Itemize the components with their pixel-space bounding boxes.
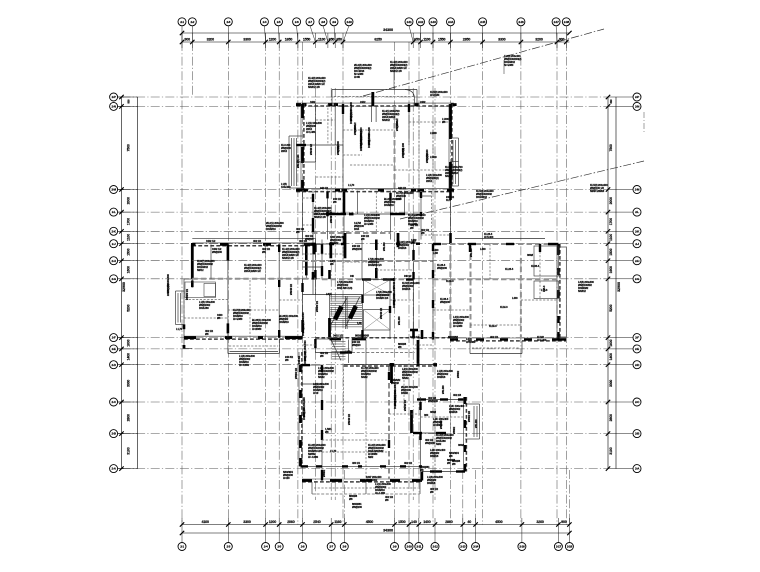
svg-text:L400: L400: [469, 248, 473, 254]
svg-text:Ø8@200: Ø8@200: [437, 266, 447, 270]
svg-text:2-11: 2-11: [407, 20, 412, 24]
svg-text:4100: 4100: [201, 520, 209, 524]
svg-text:N4Ø12: N4Ø12: [578, 289, 586, 293]
svg-text:940 1/2: 940 1/2: [289, 283, 293, 292]
svg-text:402 1/2: 402 1/2: [404, 461, 413, 465]
svg-text:32900: 32900: [617, 282, 621, 292]
svg-text:3300: 3300: [127, 380, 131, 387]
svg-text:2-11: 2-11: [416, 545, 421, 549]
svg-text:3402 1/2: 3402 1/2: [206, 239, 216, 243]
svg-text:DN4Ø4 1/3: DN4Ø4 1/3: [376, 296, 389, 300]
svg-text:Ø8@200: Ø8@200: [352, 247, 362, 251]
svg-text:2-3: 2-3: [227, 20, 231, 24]
svg-text:460 1/1: 460 1/1: [352, 461, 361, 465]
svg-text:N4Ø12: N4Ø12: [445, 174, 453, 178]
svg-text:DNØ16 2/3: DNØ16 2/3: [393, 396, 397, 409]
svg-text:402 1/2: 402 1/2: [490, 335, 499, 339]
svg-text:Ø8@20: Ø8@20: [352, 343, 361, 347]
svg-text:H=1.400: H=1.400: [537, 338, 547, 342]
svg-text:402: 402: [452, 426, 456, 431]
svg-text:NØ2: NØ2: [436, 442, 442, 446]
svg-text:L1,70: L1,70: [176, 327, 183, 331]
svg-text:2-6: 2-6: [301, 545, 305, 549]
svg-text:L400: L400: [439, 420, 443, 426]
svg-text:3300: 3300: [498, 38, 506, 42]
svg-text:DNØ16: DNØ16: [449, 410, 458, 414]
svg-text:DN4: DN4: [354, 227, 360, 231]
svg-text:2-M: 2-M: [635, 188, 640, 192]
svg-text:H=Ø0: H=Ø0: [283, 476, 290, 480]
svg-text:1700: 1700: [127, 218, 131, 225]
svg-text:1200: 1200: [269, 38, 277, 42]
svg-text:2-P: 2-P: [635, 95, 639, 99]
svg-text:L400: L400: [480, 247, 486, 251]
svg-text:L400: L400: [397, 316, 401, 322]
svg-text:DNØ16: DNØ16: [392, 299, 396, 308]
svg-text:2-J: 2-J: [635, 242, 639, 246]
svg-text:402 1/2: 402 1/2: [294, 367, 298, 376]
svg-text:H=1.480: H=1.480: [306, 130, 316, 134]
svg-text:H=-0.080: H=-0.080: [239, 363, 250, 367]
svg-text:2850: 2850: [463, 38, 471, 42]
svg-text:940 3/2: 940 3/2: [297, 355, 301, 364]
svg-text:1,1(5): 1,1(5): [345, 349, 351, 353]
svg-text:4500: 4500: [366, 520, 374, 524]
svg-text:H=Ø080: H=Ø080: [252, 327, 262, 331]
svg-text:3402: 3402: [310, 100, 316, 104]
svg-text:940 1/2: 940 1/2: [392, 277, 396, 286]
svg-text:2-2: 2-2: [191, 20, 195, 24]
svg-text:2-P: 2-P: [112, 95, 116, 99]
svg-text:H=3.080: H=3.080: [466, 340, 476, 344]
svg-text:360Ø: 360Ø: [458, 443, 464, 447]
svg-text:2402: 2402: [420, 100, 426, 104]
svg-text:H=-1.080: H=-1.080: [375, 491, 386, 495]
svg-text:100x400: 100x400: [281, 185, 291, 189]
svg-text:N4Ø12 2/3: N4Ø12 2/3: [308, 85, 320, 89]
svg-text:402 1/2: 402 1/2: [467, 410, 471, 419]
svg-text:900: 900: [561, 520, 567, 524]
svg-text:KL36-3: KL36-3: [531, 264, 540, 268]
svg-text:H=4.080: H=4.080: [453, 324, 463, 328]
svg-text:Ø8@200: Ø8@200: [353, 125, 357, 135]
svg-text:940 1/2: 940 1/2: [379, 307, 383, 316]
svg-text:2-16: 2-16: [518, 20, 524, 24]
svg-text:H=5.400: H=5.400: [484, 235, 494, 239]
svg-text:2-12: 2-12: [433, 545, 439, 549]
svg-text:1160: 1160: [334, 520, 341, 524]
svg-text:2-16: 2-16: [519, 545, 525, 549]
svg-text:Ø8@200: Ø8@200: [428, 399, 438, 403]
svg-text:860/Ø88ØØ: 860/Ø88ØØ: [355, 334, 370, 338]
svg-text:Ø8@200: Ø8@200: [336, 145, 340, 155]
svg-text:940 1/2: 940 1/2: [403, 399, 407, 408]
svg-text:402 2/3: 402 2/3: [453, 393, 462, 397]
svg-text:402: 402: [322, 469, 326, 474]
svg-text:2-13: 2-13: [431, 20, 437, 24]
svg-text:DNØ2: DNØ2: [303, 357, 307, 365]
svg-text:3300: 3300: [243, 38, 251, 42]
svg-text:2Ø14;2Ø20 1/2: 2Ø14;2Ø20 1/2: [244, 269, 261, 273]
svg-text:7500: 7500: [609, 144, 613, 151]
svg-text:1400: 1400: [423, 520, 431, 524]
svg-text:2-6: 2-6: [295, 20, 299, 24]
svg-text:2-7: 2-7: [308, 20, 312, 24]
svg-text:Ø8@Ø: Ø8@Ø: [391, 381, 399, 385]
svg-text:DNØ16: DNØ16: [398, 246, 407, 250]
svg-text:LØ3: LØ3: [433, 251, 438, 255]
svg-text:2-F: 2-F: [635, 336, 639, 340]
svg-text:2-18: 2-18: [567, 545, 573, 549]
svg-text:KL26-3: KL26-3: [505, 267, 514, 271]
svg-text:DNØ16: DNØ16: [367, 139, 371, 148]
svg-text:1400: 1400: [609, 353, 613, 360]
svg-text:2-17: 2-17: [556, 545, 562, 549]
svg-text:1100: 1100: [609, 234, 613, 241]
svg-text:2-4: 2-4: [263, 20, 267, 24]
svg-text:3402 1/2: 3402 1/2: [333, 334, 343, 338]
svg-text:2-13: 2-13: [460, 545, 466, 549]
svg-text:2-17: 2-17: [554, 20, 560, 24]
svg-text:402 1/2: 402 1/2: [253, 239, 262, 243]
svg-text:2-9: 2-9: [393, 545, 397, 549]
svg-text:2-3: 2-3: [227, 545, 231, 549]
svg-text:2Ø14;2Ø20 1/2: 2Ø14;2Ø20 1/2: [359, 134, 363, 151]
svg-text:2Ø12: 2Ø12: [426, 179, 433, 183]
svg-text:3300: 3300: [609, 380, 613, 387]
svg-text:3100: 3100: [127, 447, 131, 454]
svg-text:1,81: 1,81: [357, 321, 362, 325]
svg-text:2-8: 2-8: [343, 545, 347, 549]
svg-text:Ø8@200: Ø8@200: [425, 153, 429, 163]
svg-text:H=2.180: H=2.180: [430, 93, 440, 97]
svg-text:1550: 1550: [438, 38, 446, 42]
svg-text:DNØ16: DNØ16: [402, 287, 411, 291]
svg-text:DNØ16: DNØ16: [430, 454, 439, 458]
svg-text:N4Ø12: N4Ø12: [382, 118, 390, 122]
svg-text:L1,70: L1,70: [330, 449, 337, 453]
svg-text:Ø8@200: Ø8@200: [401, 148, 405, 158]
svg-text:Ø8@200: Ø8@200: [352, 505, 362, 509]
svg-text:1650: 1650: [285, 38, 293, 42]
svg-text:34300: 34300: [383, 28, 393, 32]
svg-text:Ø8@2002: Ø8@2002: [366, 478, 378, 482]
svg-text:1200: 1200: [269, 520, 277, 524]
svg-text:1000: 1000: [609, 339, 613, 346]
svg-text:2-E: 2-E: [112, 347, 116, 351]
svg-text:DNØ16: DNØ16: [427, 481, 436, 485]
svg-text:402 1/5: 402 1/5: [299, 239, 308, 243]
svg-text:2-14: 2-14: [448, 20, 454, 24]
svg-text:Ø8@200: Ø8@200: [425, 441, 435, 445]
svg-text:L400: L400: [474, 419, 478, 425]
svg-text:1500: 1500: [609, 248, 613, 255]
svg-text:L1000: L1000: [430, 131, 437, 135]
svg-text:2-5: 2-5: [277, 545, 281, 549]
svg-text:H=Ø: H=Ø: [313, 391, 318, 395]
svg-text:2-1: 2-1: [180, 545, 184, 549]
svg-text:KLM-3: KLM-3: [446, 279, 454, 283]
svg-text:360: 360: [424, 413, 429, 417]
svg-text:DNØ2: DNØ2: [302, 413, 306, 421]
svg-text:2-5: 2-5: [277, 20, 281, 24]
svg-text:1700: 1700: [609, 218, 613, 225]
svg-text:5200: 5200: [127, 304, 131, 311]
svg-text:H=80: H=80: [354, 75, 361, 79]
svg-text:2800: 2800: [127, 414, 131, 421]
svg-text:DNØ2: DNØ2: [401, 391, 409, 395]
svg-text:340 1/2: 340 1/2: [404, 275, 412, 278]
svg-text:DN4Ø2: DN4Ø2: [330, 241, 339, 245]
svg-text:N4Ø12 2/3: N4Ø12 2/3: [314, 215, 326, 219]
svg-text:2-15: 2-15: [480, 20, 486, 24]
svg-text:360Ø: 360Ø: [430, 410, 436, 414]
svg-text:650: 650: [336, 38, 342, 42]
svg-text:3402 1/2: 3402 1/2: [410, 335, 420, 339]
svg-text:KL5: KL5: [446, 198, 451, 202]
svg-text:1000: 1000: [127, 339, 131, 346]
svg-text:650: 650: [329, 38, 335, 42]
svg-text:2-4: 2-4: [264, 545, 268, 549]
svg-text:800: 800: [127, 99, 131, 104]
svg-text:L1,70: L1,70: [348, 183, 355, 187]
svg-text:650: 650: [414, 38, 420, 42]
svg-text:460 1/1: 460 1/1: [185, 288, 189, 297]
svg-text:940 1/2: 940 1/2: [347, 413, 351, 422]
svg-text:DNØ16: DNØ16: [437, 375, 446, 379]
svg-text:1100: 1100: [318, 38, 325, 42]
svg-text:L400: L400: [512, 296, 518, 300]
svg-text:N4Ø2: N4Ø2: [318, 375, 325, 379]
svg-text:2000: 2000: [127, 197, 131, 204]
svg-text:1600: 1600: [609, 266, 613, 273]
svg-text:DN4Ø16: DN4Ø16: [266, 227, 276, 231]
svg-text:KLM-3: KLM-3: [500, 305, 508, 309]
svg-text:140: 140: [411, 520, 417, 524]
svg-text:2-E: 2-E: [635, 347, 639, 351]
svg-text:Ø8@200: Ø8@200: [395, 121, 399, 131]
svg-text:2Ø12: 2Ø12: [166, 289, 170, 296]
svg-text:7500: 7500: [127, 144, 131, 151]
svg-text:L1(5) 100: L1(5) 100: [296, 154, 300, 165]
svg-text:2-J: 2-J: [112, 242, 116, 246]
svg-text:NØ2: NØ2: [368, 455, 374, 459]
svg-text:2-8: 2-8: [321, 20, 325, 24]
svg-text:H=-0.080: H=-0.080: [308, 455, 319, 459]
svg-text:2-10: 2-10: [347, 20, 353, 24]
svg-text:2540: 2540: [313, 520, 321, 524]
svg-text:N4Ø2: N4Ø2: [361, 375, 368, 379]
svg-text:860/Ø8Ø: 860/Ø8Ø: [448, 335, 458, 339]
svg-text:1100: 1100: [423, 38, 430, 42]
svg-text:DN4Ø16 1/3: DN4Ø16 1/3: [368, 263, 382, 267]
svg-text:2-7: 2-7: [329, 545, 333, 549]
svg-text:800: 800: [609, 99, 613, 104]
svg-text:2-14: 2-14: [473, 545, 479, 549]
svg-text:DN4: DN4: [396, 197, 402, 201]
svg-text:3200: 3200: [536, 520, 544, 524]
svg-text:NØ12: NØ12: [197, 268, 204, 272]
svg-text:1400: 1400: [127, 353, 131, 360]
svg-text:2060: 2060: [287, 520, 295, 524]
svg-text:360Ø: 360Ø: [527, 253, 533, 257]
svg-text:2-F: 2-F: [112, 336, 116, 340]
svg-text:2-10: 2-10: [407, 545, 413, 549]
svg-text:2-18: 2-18: [564, 20, 570, 24]
svg-text:2800: 2800: [609, 414, 613, 421]
svg-text:1500: 1500: [398, 520, 406, 524]
svg-text:3200: 3200: [207, 38, 215, 42]
svg-text:1500: 1500: [127, 248, 131, 255]
svg-text:L1000: L1000: [430, 155, 437, 159]
svg-text:1100: 1100: [127, 234, 131, 241]
svg-text:6250: 6250: [374, 38, 382, 42]
svg-text:N4Ø12 2/3: N4Ø12 2/3: [390, 69, 402, 73]
svg-text:940 1/2: 940 1/2: [320, 186, 329, 190]
svg-text:DN14Ø12: DN14Ø12: [476, 195, 488, 199]
svg-text:H=4.080: H=4.080: [233, 317, 243, 321]
svg-text:1600: 1600: [127, 266, 131, 273]
svg-text:2-L: 2-L: [112, 210, 116, 214]
svg-text:DNØ2 2/3: DNØ2 2/3: [301, 325, 305, 336]
svg-text:2-M: 2-M: [111, 188, 116, 192]
svg-text:2860: 2860: [445, 520, 453, 524]
svg-text:1550: 1550: [303, 38, 311, 42]
svg-text:2-9: 2-9: [332, 20, 336, 24]
svg-text:2-1: 2-1: [180, 20, 184, 24]
svg-text:5200: 5200: [609, 304, 613, 311]
svg-text:L8(1): L8(1): [326, 292, 332, 296]
svg-text:N4Ø12 2/3: N4Ø12 2/3: [282, 256, 294, 260]
svg-text:Ø8@200: Ø8@200: [212, 250, 222, 254]
svg-text:402: 402: [456, 370, 460, 375]
svg-text:2-12: 2-12: [418, 20, 424, 24]
svg-text:34300: 34300: [383, 529, 393, 533]
svg-text:2412: 2412: [360, 100, 366, 104]
svg-text:L400: L400: [441, 385, 445, 391]
svg-text:Ø8@200: Ø8@200: [440, 300, 450, 304]
svg-text:N=4.080: N=4.080: [504, 63, 514, 67]
svg-text:3200: 3200: [535, 38, 543, 42]
svg-text:L400: L400: [382, 242, 386, 248]
svg-text:2Ø12: 2Ø12: [281, 149, 288, 153]
svg-text:940 1/2: 940 1/2: [309, 143, 313, 152]
svg-text:460 1/1: 460 1/1: [315, 300, 319, 309]
svg-text:900: 900: [184, 38, 190, 42]
svg-text:L15-3: L15-3: [542, 285, 546, 292]
svg-text:H=4.080: H=4.080: [364, 222, 374, 226]
svg-text:DN4Ø16: DN4Ø16: [384, 203, 394, 207]
svg-text:NØØ 1/ØØØ: NØØ 1/ØØØ: [590, 189, 604, 193]
svg-text:940 1/2: 940 1/2: [398, 186, 407, 190]
svg-text:KLM-3: KLM-3: [489, 324, 497, 328]
svg-text:N4Ø2: N4Ø2: [402, 376, 409, 380]
svg-text:2-L: 2-L: [635, 210, 639, 214]
svg-text:40: 40: [467, 520, 471, 524]
svg-text:3300: 3300: [243, 520, 251, 524]
svg-text:DNØ16: DNØ16: [349, 115, 353, 124]
svg-text:2000: 2000: [609, 197, 613, 204]
svg-text:DN4Ø16: DN4Ø16: [279, 320, 289, 324]
svg-text:940 1/2: 940 1/2: [329, 211, 333, 220]
svg-text:DN(L3Ø4 1/3): DN(L3Ø4 1/3): [337, 286, 352, 290]
svg-text:DN4.080: DN4.080: [199, 306, 209, 310]
svg-text:4500: 4500: [495, 520, 503, 524]
svg-text:32900: 32900: [122, 282, 126, 292]
svg-text:3100: 3100: [609, 447, 613, 454]
